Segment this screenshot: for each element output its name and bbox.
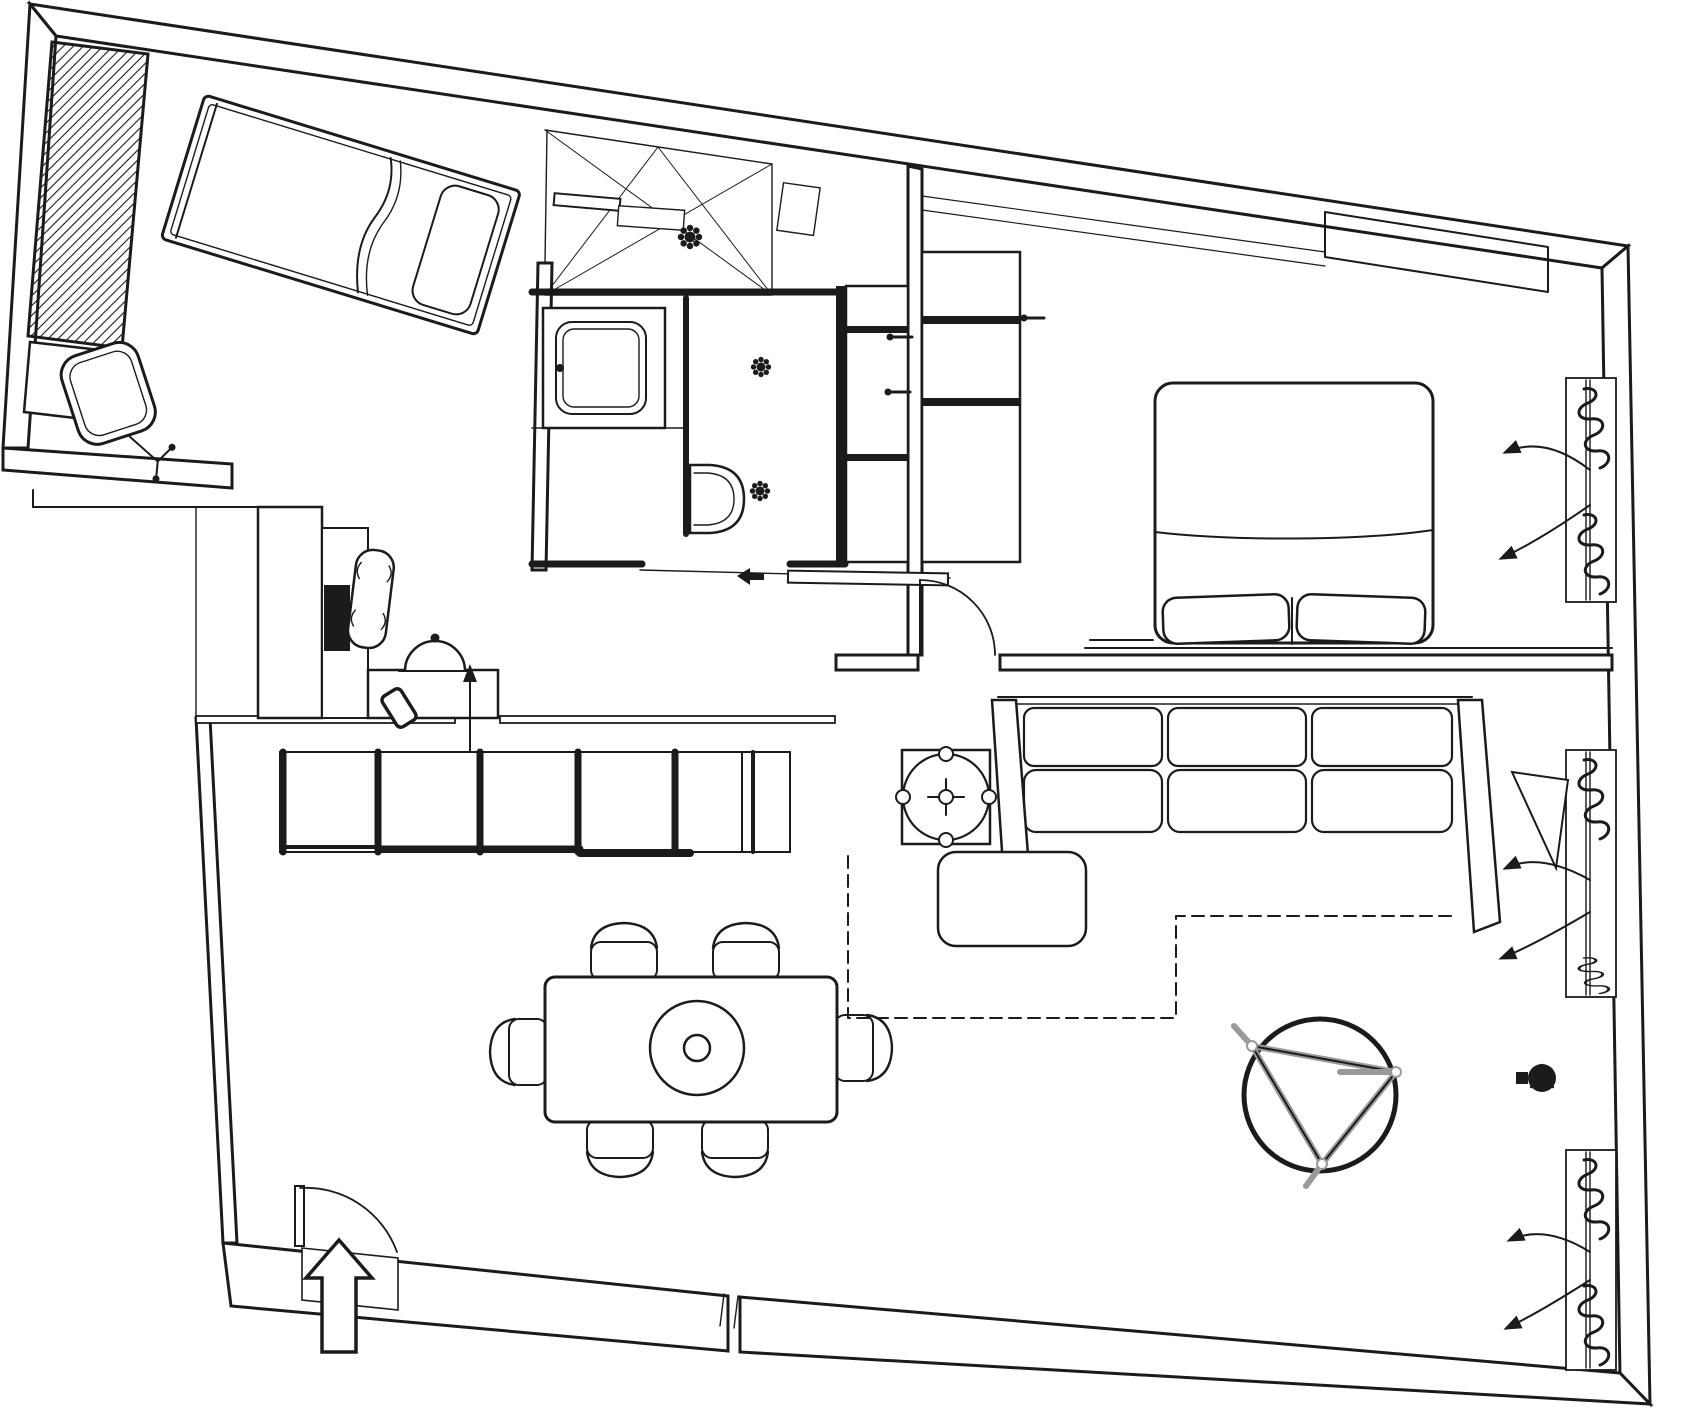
round-lounge-chair [1234,1019,1401,1186]
sofa-armrest-right [1458,700,1500,932]
hallway [258,507,498,775]
partition-hall-living-right [500,716,835,723]
plant-table [896,747,996,847]
wall-bedroom-bottom-b [1000,655,1612,670]
closet-columns [846,252,1044,562]
dining-chair [702,1120,768,1177]
back-cushion [1024,708,1162,766]
wall-left-living [196,718,237,1243]
entrance [295,1186,398,1352]
wall-bottom-left [223,1243,728,1351]
bedroom-right [920,196,1612,655]
desk-monitor [324,585,350,651]
shower-bench [617,206,684,231]
bedroom-door [920,580,995,655]
radiator-valve [1516,1064,1556,1092]
shower-drain-rosette [678,225,702,249]
closet-handle [1021,315,1045,322]
washbasin [556,322,646,414]
shower-bar [554,193,621,211]
duct-box [777,183,820,236]
window-1 [1502,378,1616,602]
double-bed [1155,383,1433,644]
ceiling-spotlight [750,481,770,501]
window-2 [1502,750,1616,997]
window-3 [1507,1150,1616,1370]
sofa-chaise [938,852,1086,946]
shelf-column [258,507,322,718]
wall-bedroom-bottom-a [836,655,918,670]
dining-chair [835,1015,892,1081]
seat-cushion [1312,770,1452,832]
back-cushion [1312,708,1452,766]
dining-chair [591,923,657,980]
bedroom-upper-left [24,42,521,500]
curtain-swag [1512,772,1568,868]
seat-cushion [1168,770,1306,832]
faucet [556,364,564,372]
sofa [848,697,1500,1018]
floor-plan-svg [0,0,1708,1415]
seat-cushion [1024,770,1162,832]
single-bed [161,95,520,335]
dining-chair [587,1120,653,1177]
door-swing-arc [920,580,995,655]
wall-bottom-right [740,1297,1650,1404]
wall-joint-tick [734,1296,738,1328]
dining-chair [490,1019,547,1085]
bed-pillow [1296,594,1426,644]
sliding-door-arrow [737,568,764,585]
ceiling-spotlight [751,357,771,377]
dining-chair [713,923,779,980]
bedroom-closet [922,252,1020,562]
kitchen-sideboard [280,752,790,853]
wall-step-left [3,448,232,488]
entrance-door-leaf [295,1186,304,1246]
wall-closet-mid [836,286,846,562]
shower-enclosure-edge [545,130,547,263]
sliding-door-leaf [788,571,948,586]
back-cushion [1168,708,1306,766]
living-dining-room [280,697,1556,1352]
bed-pillow [1162,594,1290,644]
dome-lamp [399,634,471,672]
shower-area [545,130,820,295]
dining-set [490,923,892,1177]
